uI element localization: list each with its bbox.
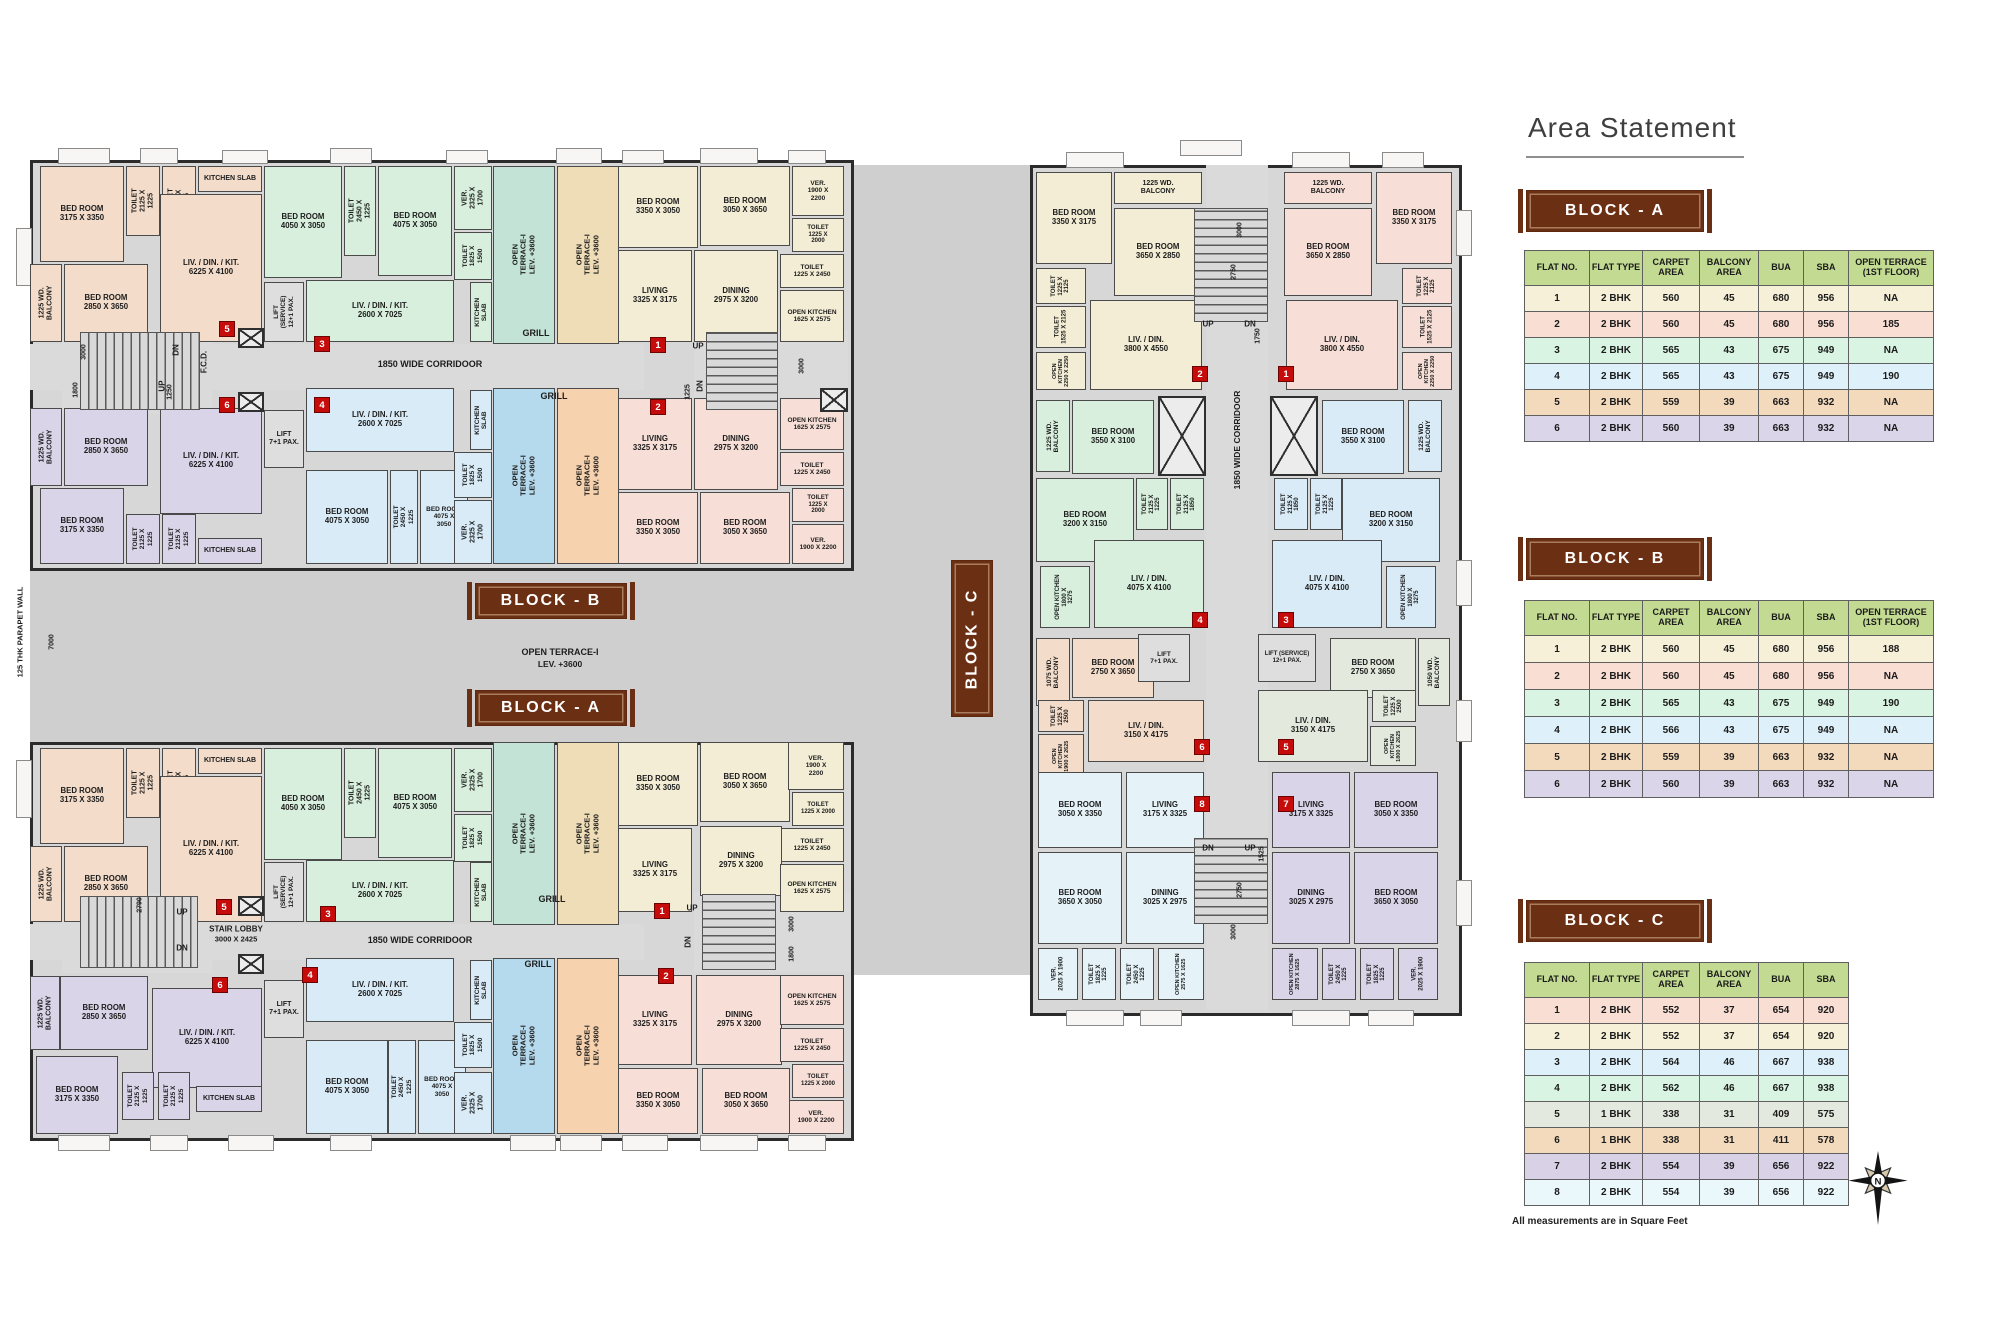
balcony-bump bbox=[700, 1135, 758, 1151]
room-label: DINING 3025 X 2975 bbox=[1274, 889, 1348, 906]
room: BED ROOM 3650 X 2850 bbox=[1114, 208, 1202, 296]
room-label: LIV. / DIN. 4075 X 4100 bbox=[1096, 575, 1202, 592]
room: BED ROOM 3050 X 3350 bbox=[1038, 772, 1122, 848]
room: TOILET 2450 X 1225 bbox=[390, 470, 418, 564]
balcony-bump bbox=[446, 150, 488, 164]
room-label: LIV. / DIN. 3150 X 4175 bbox=[1260, 717, 1366, 734]
room: OPEN KITCHEN 2250 X 2250 bbox=[1036, 352, 1086, 390]
room-label: BED ROOM 3350 X 3050 bbox=[620, 1092, 696, 1109]
room-label: DINING 2975 X 3200 bbox=[702, 852, 780, 869]
balcony-bump bbox=[222, 150, 268, 164]
room: KITCHEN SLAB bbox=[470, 960, 492, 1020]
table-cell: 409 bbox=[1759, 1102, 1804, 1128]
unit-number-badge: 2 bbox=[658, 968, 674, 984]
room: TOILET 1225 X 2125 bbox=[1402, 268, 1452, 304]
table-cell: 680 bbox=[1759, 663, 1804, 690]
table-row: 52 BHK55939663932NA bbox=[1525, 744, 1934, 771]
block-banner: BLOCK - A bbox=[1526, 190, 1704, 232]
unit-number-badge: 1 bbox=[650, 337, 666, 353]
table-cell: 564 bbox=[1643, 1050, 1700, 1076]
table-cell: 4 bbox=[1525, 1076, 1590, 1102]
table-cell: 43 bbox=[1700, 338, 1759, 364]
table-cell: 663 bbox=[1759, 744, 1804, 771]
room: KITCHEN SLAB bbox=[198, 166, 262, 192]
plan-text: 1800 bbox=[789, 946, 796, 962]
room-label: KITCHEN SLAB bbox=[474, 406, 489, 435]
plan-text: 3000 bbox=[799, 358, 806, 374]
area-table: FLAT NO.FLAT TYPECARPET AREABALCONY AREA… bbox=[1524, 962, 1849, 1206]
room-label: OPEN KITCHEN 1900 X 2625 bbox=[1052, 736, 1070, 776]
table-cell: 190 bbox=[1849, 364, 1934, 390]
room: BED ROOM 3350 X 3050 bbox=[618, 742, 698, 826]
table-cell: 565 bbox=[1643, 690, 1700, 717]
plan-text: 1800 bbox=[73, 382, 80, 398]
table-cell: 2 BHK bbox=[1590, 998, 1643, 1024]
room-label: OPEN KITCHEN 1625 X 2575 bbox=[782, 417, 842, 432]
room: KITCHEN SLAB bbox=[470, 282, 492, 342]
room: DINING 2975 X 3200 bbox=[694, 250, 778, 342]
room: LIFT 7+1 PAX. bbox=[1138, 634, 1190, 682]
room-label: OPEN KITCHEN 2250 X 2250 bbox=[1052, 354, 1070, 388]
table-cell: 559 bbox=[1643, 390, 1700, 416]
balcony-bump bbox=[228, 1135, 274, 1151]
room: TOILET 1825 X 1225 bbox=[1082, 948, 1116, 1000]
unit-number-badge: 6 bbox=[212, 977, 228, 993]
room: OPEN KITCHEN 1625 X 2575 bbox=[780, 290, 844, 342]
room: VER. 1900 X 2200 bbox=[792, 524, 844, 564]
room: 1225 WD. BALCONY bbox=[30, 408, 62, 486]
room-label: KITCHEN SLAB bbox=[200, 175, 260, 183]
room-label: BED ROOM 4075 X 3050 bbox=[308, 1078, 386, 1095]
room-label: DINING 3025 X 2975 bbox=[1128, 889, 1202, 906]
room-label: BED ROOM 4050 X 3050 bbox=[266, 795, 340, 812]
table-cell: 680 bbox=[1759, 286, 1804, 312]
room-label: DINING 2975 X 3200 bbox=[696, 287, 776, 304]
table-cell: 949 bbox=[1804, 690, 1849, 717]
room: TOILET 2450 X 1225 bbox=[344, 748, 376, 838]
room: VER. 2325 X 1700 bbox=[454, 748, 492, 812]
table-cell: 562 bbox=[1643, 1076, 1700, 1102]
room-label: OPEN TERRACE-I LEV. +3600 bbox=[575, 1016, 600, 1076]
table-cell: 578 bbox=[1804, 1128, 1849, 1154]
table-cell: 190 bbox=[1849, 690, 1934, 717]
room-label: TOILET 1525 X 2125 bbox=[1420, 308, 1433, 346]
room: TOILET 2125 X 1225 bbox=[1136, 478, 1168, 530]
room-label: VER. 2025 X 1900 bbox=[1051, 955, 1064, 993]
table-cell: 1 BHK bbox=[1590, 1102, 1643, 1128]
plan-text: UP bbox=[1202, 320, 1213, 329]
table-cell: 3 bbox=[1525, 690, 1590, 717]
table-row: 82 BHK55439656922 bbox=[1525, 1180, 1849, 1206]
room-label: OPEN KITCHEN 1800 X 2625 bbox=[1384, 728, 1402, 764]
room: BED ROOM 3050 X 3650 bbox=[700, 166, 790, 246]
balcony-bump bbox=[58, 1135, 110, 1151]
room: BED ROOM 3350 X 3175 bbox=[1376, 172, 1452, 264]
room-label: 1225 WD. BALCONY bbox=[38, 867, 54, 902]
table-cell: 338 bbox=[1643, 1102, 1700, 1128]
table-cell: 920 bbox=[1804, 998, 1849, 1024]
plan-text: DN bbox=[696, 380, 705, 392]
room-label: LIFT (SERVICE) 12+1 PAX. bbox=[273, 873, 295, 911]
room-label: TOILET 2125 X 1850 bbox=[1281, 488, 1301, 520]
room: BED ROOM 3650 X 2850 bbox=[1284, 208, 1372, 296]
table-header-cell: SBA bbox=[1804, 963, 1849, 998]
plan-text: F.C.D. bbox=[200, 351, 209, 373]
unit-number-badge: 4 bbox=[302, 967, 318, 983]
table-cell: 411 bbox=[1759, 1128, 1804, 1154]
room: BED ROOM 3175 X 3350 bbox=[36, 1056, 118, 1134]
table-cell: 932 bbox=[1804, 416, 1849, 442]
room-label: VER. 1900 X 2200 bbox=[794, 537, 842, 552]
table-header-cell: OPEN TERRACE (1ST FLOOR) bbox=[1849, 251, 1934, 286]
room-label: TOILET 1825 X 1500 bbox=[462, 238, 484, 274]
room-label: OPEN KITCHEN 2875 X 1625 bbox=[1289, 952, 1301, 996]
room: TOILET 2125 X 1225 bbox=[126, 166, 160, 236]
room: KITCHEN SLAB bbox=[196, 1086, 262, 1112]
room-label: 1225 WD. BALCONY bbox=[1046, 420, 1061, 452]
table-cell: 2 BHK bbox=[1590, 390, 1643, 416]
balcony-bump bbox=[330, 148, 372, 164]
room-label: VER. 2325 X 1700 bbox=[461, 1085, 484, 1121]
room-label: TOILET 2450 X 1225 bbox=[348, 196, 371, 226]
room: LIV. / DIN. 3800 X 4550 bbox=[1286, 300, 1398, 390]
unit-number-badge: 3 bbox=[1278, 612, 1294, 628]
table-cell: 1 bbox=[1525, 998, 1590, 1024]
table-cell: 2 BHK bbox=[1590, 1180, 1643, 1206]
room: BED ROOM 2750 X 3650 bbox=[1330, 638, 1416, 698]
room: VER. 1900 X 2200 bbox=[788, 742, 844, 790]
table-cell: 2 BHK bbox=[1590, 416, 1643, 442]
plan-text: DN bbox=[684, 936, 693, 948]
room-label: TOILET 2450 X 1225 bbox=[348, 778, 371, 808]
room: LIVING 3325 X 3175 bbox=[618, 975, 692, 1065]
room: BED ROOM 3550 X 3100 bbox=[1322, 400, 1404, 474]
room-label: TOILET 2125 X 1850 bbox=[1177, 488, 1197, 520]
table-cell: 188 bbox=[1849, 636, 1934, 663]
room: TOILET 1225 X 2450 bbox=[780, 254, 844, 288]
unit-number-badge: 1 bbox=[654, 903, 670, 919]
room: OPEN KITCHEN 1625 X 2575 bbox=[780, 975, 844, 1025]
room: BED ROOM 4050 X 3050 bbox=[264, 166, 342, 278]
room: LIV. / DIN. / KIT. 2600 X 7025 bbox=[306, 280, 454, 342]
room: TOILET 1225 X 2000 bbox=[792, 1064, 844, 1098]
unit-number-badge: 2 bbox=[1192, 366, 1208, 382]
room: VER. 1900 X 2200 bbox=[792, 166, 844, 216]
room-label: 1225 WD. BALCONY bbox=[38, 430, 54, 465]
room-label: OPEN KITCHEN 1800 X 3275 bbox=[1401, 573, 1421, 621]
plan-text: 1750 bbox=[1255, 328, 1262, 344]
table-cell: 43 bbox=[1700, 717, 1759, 744]
table-cell: 938 bbox=[1804, 1050, 1849, 1076]
unit-number-badge: 4 bbox=[314, 397, 330, 413]
room: OPEN KITCHEN 1800 X 2625 bbox=[1370, 726, 1416, 766]
room: BED ROOM 3050 X 3650 bbox=[700, 492, 790, 564]
table-cell: 2 BHK bbox=[1590, 364, 1643, 390]
room-label: BED ROOM 4075 X 3050 bbox=[308, 508, 386, 525]
balcony-bump bbox=[510, 1135, 556, 1151]
plan-text: 1250 bbox=[167, 384, 174, 400]
plan-text: STAIR LOBBY bbox=[209, 925, 263, 934]
compass-n-label: N bbox=[1875, 1176, 1882, 1187]
room: DINING 3025 X 2975 bbox=[1272, 852, 1350, 944]
balcony-bump bbox=[1292, 152, 1350, 168]
block-banner: BLOCK - B bbox=[475, 583, 627, 619]
balcony-bump bbox=[1140, 1010, 1182, 1026]
table-cell: 4 bbox=[1525, 364, 1590, 390]
room-label: LIVING 3175 X 3325 bbox=[1128, 801, 1202, 818]
room: TOILET 1825 X 1225 bbox=[1360, 948, 1394, 1000]
block-banner-label: BLOCK - A bbox=[501, 699, 601, 717]
room: LIVING 3325 X 3175 bbox=[618, 828, 692, 912]
room: LIVING 3175 X 3325 bbox=[1126, 772, 1204, 848]
room: BED ROOM 3050 X 3650 bbox=[702, 1068, 790, 1134]
unit-number-badge: 2 bbox=[650, 399, 666, 415]
room-label: TOILET 1225 X 2000 bbox=[794, 225, 842, 245]
room: OPEN TERRACE-I LEV. +3600 bbox=[557, 388, 619, 564]
plan-text: 3000 X 2425 bbox=[215, 935, 258, 944]
shaft bbox=[238, 896, 264, 916]
unit-number-badge: 6 bbox=[1194, 739, 1210, 755]
balcony-bump bbox=[150, 1135, 188, 1151]
table-cell: 2 BHK bbox=[1590, 717, 1643, 744]
table-header-cell: FLAT TYPE bbox=[1590, 251, 1643, 286]
shaft bbox=[238, 954, 264, 974]
table-cell: 554 bbox=[1643, 1154, 1700, 1180]
room: LIV. / DIN. 3150 X 4175 bbox=[1258, 690, 1368, 762]
table-cell: NA bbox=[1849, 338, 1934, 364]
room-label: BED ROOM 4050 X 3050 bbox=[266, 213, 340, 230]
room: BED ROOM 3550 X 3100 bbox=[1072, 400, 1154, 474]
room: LIFT (SERVICE) 12+1 PAX. bbox=[264, 282, 304, 342]
table-cell: 938 bbox=[1804, 1076, 1849, 1102]
balcony-bump bbox=[788, 1135, 826, 1151]
room: TOILET 1825 X 1500 bbox=[454, 1022, 492, 1068]
room-label: LIV. / DIN. 3150 X 4175 bbox=[1090, 722, 1202, 739]
table-row: 62 BHK56039663932NA bbox=[1525, 416, 1934, 442]
balcony-bump bbox=[16, 760, 32, 818]
block-banner: BLOCK - C bbox=[1526, 900, 1704, 942]
room-label: TOILET 2125 X 1225 bbox=[131, 185, 154, 217]
balcony-bump bbox=[556, 148, 602, 164]
table-cell: 565 bbox=[1643, 338, 1700, 364]
balcony-bump bbox=[1066, 1010, 1124, 1026]
room-label: BED ROOM 3175 X 3350 bbox=[42, 517, 122, 534]
room-label: TOILET 2125 X 1225 bbox=[1142, 489, 1162, 519]
room-label: LIV. / DIN. / KIT. 6225 X 4100 bbox=[162, 452, 260, 469]
room: OPEN TERRACE-I LEV. +3600 bbox=[493, 388, 555, 564]
plan-text: 2750 bbox=[1231, 264, 1238, 280]
room: 1225 WD. BALCONY bbox=[30, 846, 62, 922]
table-cell: NA bbox=[1849, 390, 1934, 416]
table-cell: 675 bbox=[1759, 690, 1804, 717]
table-row: 52 BHK55939663932NA bbox=[1525, 390, 1934, 416]
table-cell: 2 bbox=[1525, 663, 1590, 690]
floor-plan: OPEN TERRACE-I LEV. +3600OPEN TERRACE-I … bbox=[0, 0, 1500, 1335]
balcony-bump bbox=[1382, 152, 1424, 168]
table-cell: 3 bbox=[1525, 338, 1590, 364]
room: TOILET 1225 X 2450 bbox=[780, 452, 844, 486]
table-cell: 2 BHK bbox=[1590, 636, 1643, 663]
area-table: FLAT NO.FLAT TYPECARPET AREABALCONY AREA… bbox=[1524, 250, 1934, 442]
table-cell: 554 bbox=[1643, 1180, 1700, 1206]
room-label: LIFT 7+1 PAX. bbox=[266, 431, 302, 447]
room-label: BED ROOM 2850 X 3650 bbox=[66, 294, 146, 311]
table-row: 62 BHK56039663932NA bbox=[1525, 771, 1934, 798]
balcony-bump bbox=[1066, 152, 1124, 168]
table-cell: 656 bbox=[1759, 1154, 1804, 1180]
staircase bbox=[702, 894, 776, 970]
balcony-bump bbox=[1368, 1010, 1414, 1026]
room-label: VER. 1900 X 2200 bbox=[794, 180, 842, 202]
room-label: BED ROOM 2850 X 3650 bbox=[62, 1004, 146, 1021]
room-label: TOILET 1225 X 2125 bbox=[1051, 270, 1071, 302]
unit-number-badge: 1 bbox=[1278, 366, 1294, 382]
room: OPEN KITCHEN 1800 X 3275 bbox=[1040, 566, 1090, 628]
table-row: 42 BHK56246667938 bbox=[1525, 1076, 1849, 1102]
plan-text: 1225 bbox=[685, 384, 692, 400]
table-row: 51 BHK33831409575 bbox=[1525, 1102, 1849, 1128]
plan-text: DN bbox=[1202, 844, 1214, 853]
room-label: TOILET 2125 X 1225 bbox=[127, 1081, 149, 1111]
table-cell: 5 bbox=[1525, 744, 1590, 771]
plan-text: 2750 bbox=[1237, 882, 1244, 898]
table-cell: NA bbox=[1849, 717, 1934, 744]
room: TOILET 1225 X 2000 bbox=[792, 218, 844, 252]
room: 1075 WD. BALCONY bbox=[1036, 638, 1070, 706]
room: LIV. / DIN. / KIT. 6225 X 4100 bbox=[160, 194, 262, 342]
room: LIFT (SERVICE) 12+1 PAX. bbox=[1258, 634, 1316, 682]
room-label: TOILET 1225 X 2500 bbox=[1384, 692, 1404, 720]
room: BED ROOM 3175 X 3350 bbox=[40, 488, 124, 564]
room: KITCHEN SLAB bbox=[470, 390, 492, 450]
room: TOILET 2125 X 1225 bbox=[158, 1072, 190, 1120]
plan-text: UP bbox=[692, 342, 703, 351]
room-label: VER. 1900 X 2200 bbox=[790, 755, 842, 777]
plan-text: GRILL bbox=[539, 894, 566, 904]
room: 1225 WD. BALCONY bbox=[1036, 400, 1070, 472]
room-label: BED ROOM 3050 X 3650 bbox=[702, 773, 788, 790]
table-cell: 675 bbox=[1759, 717, 1804, 744]
table-header-cell: SBA bbox=[1804, 251, 1849, 286]
room: 1225 WD. BALCONY bbox=[30, 264, 62, 342]
room: TOILET 2125 X 1225 bbox=[126, 514, 160, 564]
plan-text: DN bbox=[176, 944, 188, 953]
room-label: VER. 2325 X 1700 bbox=[461, 180, 484, 216]
table-cell: 45 bbox=[1700, 312, 1759, 338]
plan-text: 7000 bbox=[49, 634, 56, 650]
room-label: BED ROOM 3050 X 3350 bbox=[1040, 801, 1120, 818]
balcony-bump bbox=[622, 150, 664, 164]
table-row: 12 BHK56045680956NA bbox=[1525, 286, 1934, 312]
table-cell: 39 bbox=[1700, 416, 1759, 442]
room: LIV. / DIN. 4075 X 4100 bbox=[1094, 540, 1204, 628]
unit-number-badge: 7 bbox=[1278, 796, 1294, 812]
room: BED ROOM 4075 X 3050 bbox=[378, 748, 452, 858]
room: TOILET 2125 X 1225 bbox=[1310, 478, 1342, 530]
table-cell: 667 bbox=[1759, 1050, 1804, 1076]
room-label: 1225 WD. BALCONY bbox=[37, 996, 53, 1031]
table-cell: 8 bbox=[1525, 1180, 1590, 1206]
room-label: LIV. / DIN. / KIT. 6225 X 4100 bbox=[162, 259, 260, 276]
room-label: OPEN TERRACE-I LEV. +3600 bbox=[511, 446, 536, 506]
room: LIV. / DIN. 3800 X 4550 bbox=[1090, 300, 1202, 390]
room-label: VER. 2325 X 1700 bbox=[461, 514, 484, 550]
room-label: BED ROOM 3650 X 2850 bbox=[1116, 243, 1200, 260]
room: TOILET 1225 X 2500 bbox=[1038, 700, 1084, 732]
table-cell: 7 bbox=[1525, 1154, 1590, 1180]
plan-text: UP bbox=[686, 904, 697, 913]
room-label: VER. 2025 X 1900 bbox=[1411, 955, 1424, 993]
room-label: TOILET 1225 X 2450 bbox=[782, 838, 842, 853]
room: TOILET 1225 X 2000 bbox=[792, 488, 844, 522]
room-label: TOILET 2125 X 1225 bbox=[163, 1081, 185, 1111]
unit-number-badge: 4 bbox=[1192, 612, 1208, 628]
room: BED ROOM 2850 X 3650 bbox=[64, 264, 148, 342]
room: 1225 WD. BALCONY bbox=[1284, 172, 1372, 204]
room: TOILET 1225 X 2450 bbox=[780, 828, 844, 862]
room-label: LIFT (SERVICE) 12+1 PAX. bbox=[1260, 651, 1314, 664]
room-label: OPEN KITCHEN 1625 X 2575 bbox=[782, 881, 842, 896]
balcony-bump bbox=[1456, 700, 1472, 742]
room-label: TOILET 2450 X 1225 bbox=[1127, 958, 1147, 990]
room: KITCHEN SLAB bbox=[198, 538, 262, 564]
room-label: TOILET 1225 X 2000 bbox=[794, 802, 842, 815]
plan-text: LEV. +3600 bbox=[538, 659, 582, 669]
table-cell: 560 bbox=[1643, 663, 1700, 690]
room: OPEN TERRACE-I LEV. +3600 bbox=[557, 166, 619, 344]
room-label: BED ROOM 3200 X 3150 bbox=[1344, 511, 1438, 528]
table-cell: 560 bbox=[1643, 286, 1700, 312]
area-table-block: FLAT NO.FLAT TYPECARPET AREABALCONY AREA… bbox=[1524, 250, 1934, 442]
room-label: BED ROOM 3550 X 3100 bbox=[1074, 428, 1152, 445]
balcony-bump bbox=[700, 148, 758, 164]
room-label: BED ROOM 3650 X 3050 bbox=[1040, 889, 1120, 906]
table-cell: 680 bbox=[1759, 312, 1804, 338]
room: TOILET 1525 X 2125 bbox=[1036, 306, 1086, 348]
table-cell: 2 BHK bbox=[1590, 663, 1643, 690]
table-cell: 663 bbox=[1759, 390, 1804, 416]
room-label: OPEN KITCHEN 1800 X 3275 bbox=[1055, 573, 1075, 621]
room: LIFT (SERVICE) 12+1 PAX. bbox=[264, 862, 304, 922]
room-label: TOILET 1525 X 2125 bbox=[1054, 308, 1067, 346]
table-header-cell: OPEN TERRACE (1ST FLOOR) bbox=[1849, 601, 1934, 636]
room: BED ROOM 3350 X 3175 bbox=[1036, 172, 1112, 264]
room: TOILET 1825 X 1500 bbox=[454, 452, 492, 498]
table-cell: 31 bbox=[1700, 1102, 1759, 1128]
table-header-cell: FLAT NO. bbox=[1525, 601, 1590, 636]
room-label: OPEN TERRACE-I LEV. +3600 bbox=[575, 446, 600, 506]
unit-number-badge: 5 bbox=[1278, 739, 1294, 755]
room: TOILET 1225 X 2125 bbox=[1036, 268, 1086, 304]
room-label: BED ROOM 3350 X 3175 bbox=[1378, 209, 1450, 226]
room-label: DINING 2975 X 3200 bbox=[698, 1011, 780, 1028]
room: VER. 2025 X 1900 bbox=[1038, 948, 1078, 1000]
room: TOILET 1225 X 2450 bbox=[780, 1028, 844, 1062]
room: TOILET 2125 X 1225 bbox=[162, 514, 196, 564]
room-label: 1225 WD. BALCONY bbox=[1418, 420, 1433, 452]
room: TOILET 2450 X 1225 bbox=[388, 1040, 416, 1134]
room: BED ROOM 3175 X 3350 bbox=[40, 166, 124, 262]
table-row: 32 BHK56543675949190 bbox=[1525, 690, 1934, 717]
block-banner-label: BLOCK - B bbox=[1565, 550, 1666, 568]
table-cell: 663 bbox=[1759, 416, 1804, 442]
plan-text: 3000 bbox=[81, 344, 88, 360]
table-cell: 2 BHK bbox=[1590, 286, 1643, 312]
table-cell: 656 bbox=[1759, 1180, 1804, 1206]
table-cell: 2 BHK bbox=[1590, 771, 1643, 798]
table-cell: 4 bbox=[1525, 717, 1590, 744]
table-row: 42 BHK56543675949190 bbox=[1525, 364, 1934, 390]
